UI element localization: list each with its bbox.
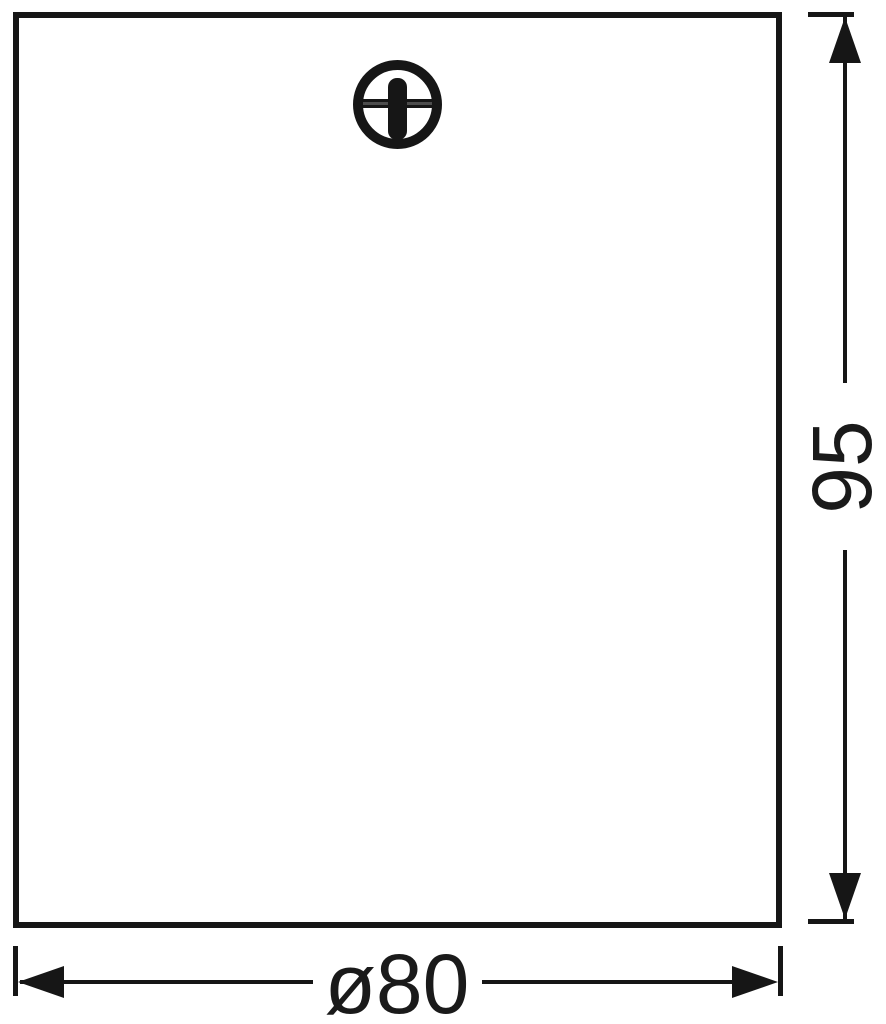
screw-vertical-slot bbox=[388, 78, 407, 140]
height-dimension-line-lower bbox=[843, 550, 847, 919]
product-outline bbox=[13, 12, 782, 928]
extension-line-bottom bbox=[808, 919, 854, 924]
diameter-dimension-label: ø80 bbox=[317, 936, 477, 1024]
height-dimension-label: 95 bbox=[782, 407, 886, 527]
arrow-left-icon bbox=[18, 966, 64, 998]
dimension-drawing: 95 ø80 bbox=[0, 0, 886, 1024]
arrow-up-icon bbox=[829, 17, 861, 63]
diameter-dimension-line-right bbox=[482, 980, 732, 984]
height-dimension-line-upper bbox=[843, 17, 847, 383]
extension-line-right bbox=[778, 946, 783, 996]
phillips-screw-head-icon bbox=[353, 60, 442, 149]
arrow-down-icon bbox=[829, 873, 861, 919]
arrow-right-icon bbox=[732, 966, 778, 998]
